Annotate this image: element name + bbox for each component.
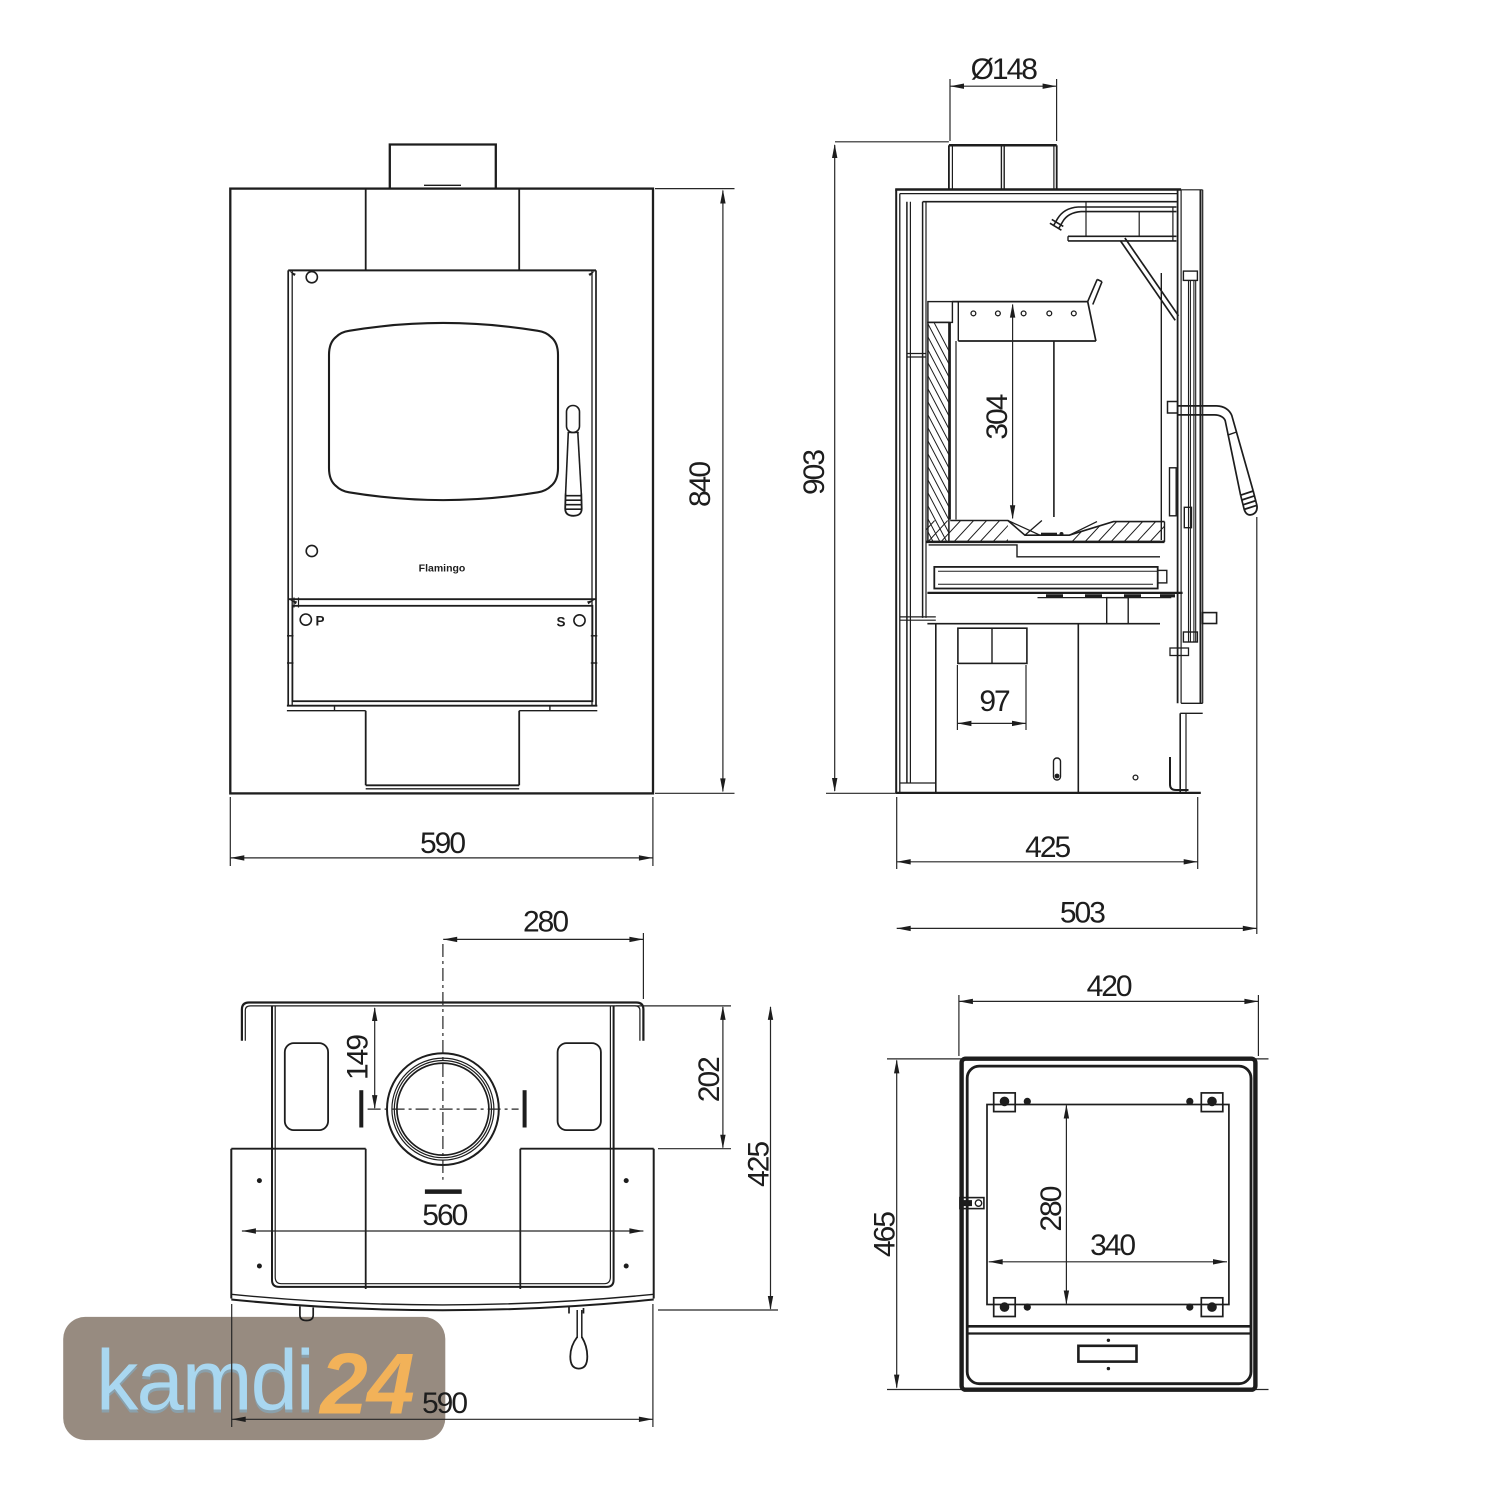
svg-text:503: 503: [1060, 897, 1105, 930]
svg-text:465: 465: [868, 1212, 901, 1257]
svg-text:24: 24: [318, 1337, 414, 1433]
svg-text:425: 425: [1025, 831, 1070, 864]
svg-text:202: 202: [693, 1057, 726, 1102]
svg-text:304: 304: [981, 394, 1014, 439]
svg-text:590: 590: [422, 1387, 467, 1420]
svg-text:420: 420: [1087, 970, 1132, 1003]
svg-text:560: 560: [422, 1199, 467, 1232]
svg-text:280: 280: [1035, 1186, 1068, 1231]
svg-text:840: 840: [684, 462, 717, 507]
svg-text:425: 425: [743, 1142, 776, 1187]
svg-text:Flamingo: Flamingo: [419, 563, 466, 575]
svg-text:340: 340: [1090, 1229, 1135, 1262]
svg-text:590: 590: [420, 827, 465, 860]
svg-text:97: 97: [979, 685, 1010, 718]
svg-text:280: 280: [523, 906, 568, 939]
svg-text:149: 149: [342, 1035, 375, 1080]
svg-text:903: 903: [798, 450, 831, 495]
svg-text:Ø148: Ø148: [971, 53, 1038, 86]
svg-text:kamdi: kamdi: [96, 1334, 313, 1429]
